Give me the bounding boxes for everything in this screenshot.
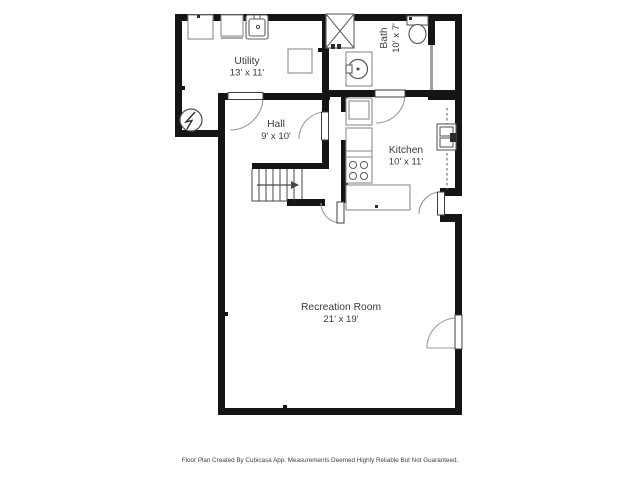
storage-appliance-fixture (288, 49, 312, 73)
footer-disclaimer: Floor Plan Created By Cubicasa App. Meas… (0, 457, 640, 464)
stairs-direction-arrow (257, 181, 299, 189)
bath-window (430, 45, 433, 90)
kitchen-peninsula-fixture (346, 185, 410, 210)
door-kitchen-exterior (419, 192, 445, 215)
bath-room-dims: 10' x 7' (391, 23, 402, 53)
utility-room-dims: 13' x 11' (230, 68, 265, 79)
hall-room-dims: 9' x 10' (261, 131, 291, 142)
walls (175, 14, 462, 415)
door-recreation-exterior (427, 315, 462, 349)
kitchen-room-name: Kitchen (389, 145, 424, 156)
toilet-fixture (407, 16, 428, 44)
door-utility-to-hall (228, 93, 263, 131)
recreation-room-dims: 21' x 19' (323, 314, 358, 325)
kitchen-room-dims: 10' x 11' (389, 157, 424, 168)
laundry-sink-fixture (246, 15, 268, 39)
door-hall-to-kitchen (299, 112, 329, 140)
staircase (252, 169, 302, 201)
stove-fixture (346, 151, 372, 183)
floor-plan-page: Utility 13' x 11' Hall 9' x 10' Bath 10'… (0, 0, 640, 480)
utility-room-name: Utility (234, 56, 260, 67)
bath-room-name: Bath (379, 27, 390, 48)
shower-fixture (326, 14, 354, 49)
dryer-fixture (221, 15, 243, 38)
kitchen-counter-fixture (346, 98, 372, 152)
hall-room-name: Hall (267, 119, 285, 130)
washer-fixture (188, 15, 213, 39)
kitchen-sink-fixture (437, 124, 456, 150)
recreation-room-name: Recreation Room (301, 302, 381, 313)
door-bathroom (375, 90, 405, 123)
floor-plan-drawing: Utility 13' x 11' Hall 9' x 10' Bath 10'… (0, 0, 640, 480)
water-heater-fixture (180, 109, 202, 131)
bathroom-sink-fixture (346, 52, 372, 86)
